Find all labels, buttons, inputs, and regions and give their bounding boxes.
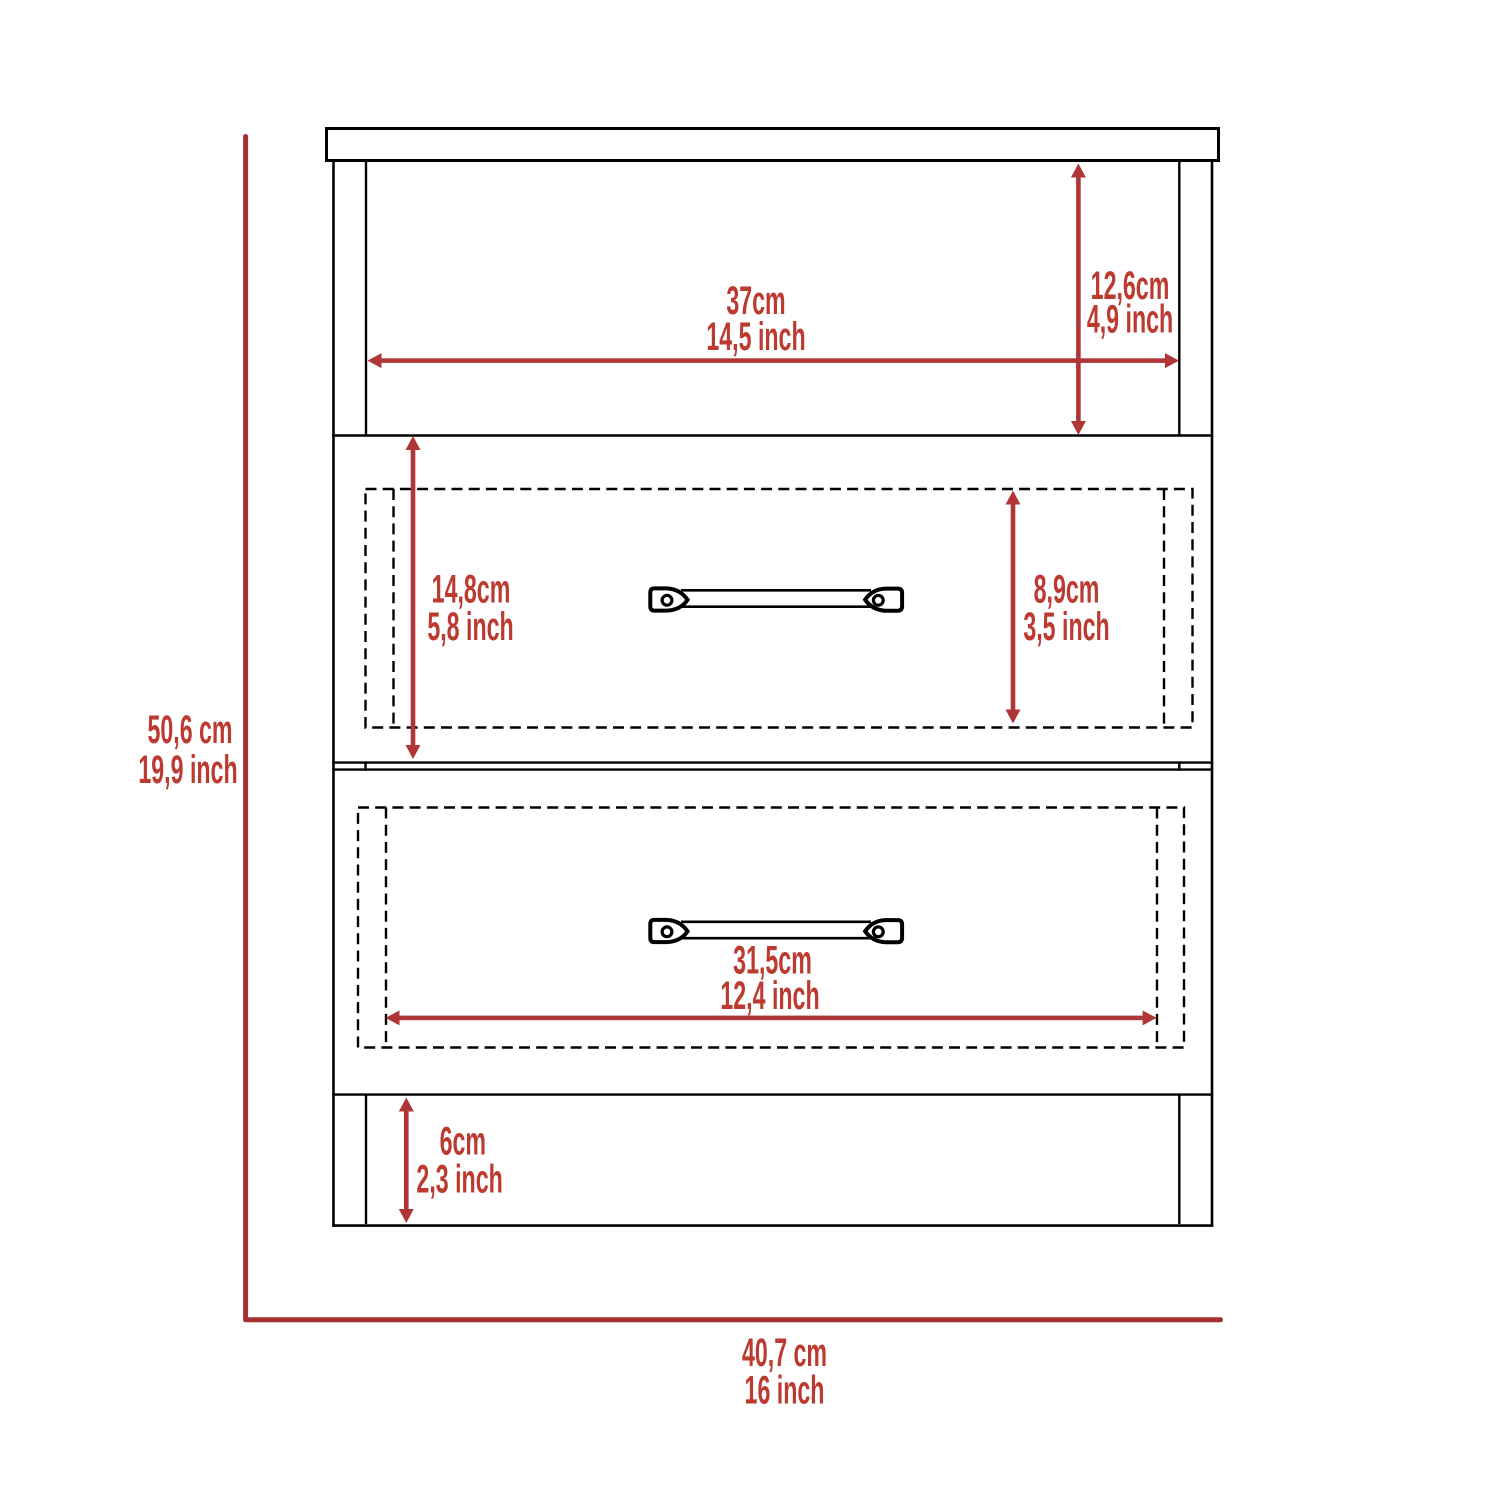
svg-text:16 inch: 16 inch <box>745 1367 825 1412</box>
svg-text:50,6 cm: 50,6 cm <box>147 706 232 751</box>
svg-text:12,4 inch: 12,4 inch <box>720 972 819 1017</box>
svg-text:4,9 inch: 4,9 inch <box>1087 296 1173 341</box>
svg-text:5,8 inch: 5,8 inch <box>427 603 513 648</box>
svg-text:3,5 inch: 3,5 inch <box>1023 603 1109 648</box>
svg-text:2,3 inch: 2,3 inch <box>416 1156 502 1201</box>
svg-text:19,9 inch: 19,9 inch <box>138 746 237 791</box>
svg-text:14,5 inch: 14,5 inch <box>706 313 805 358</box>
